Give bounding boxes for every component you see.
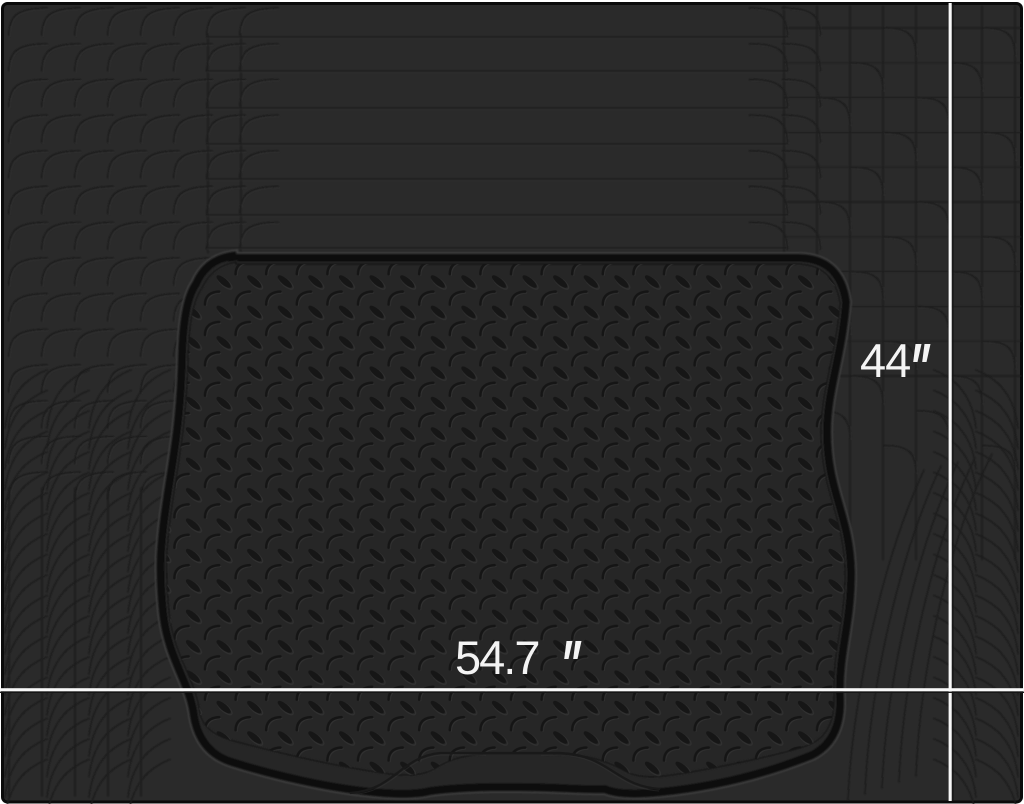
svg-text:44: 44 — [860, 334, 910, 387]
svg-text:54.7: 54.7 — [455, 631, 538, 684]
